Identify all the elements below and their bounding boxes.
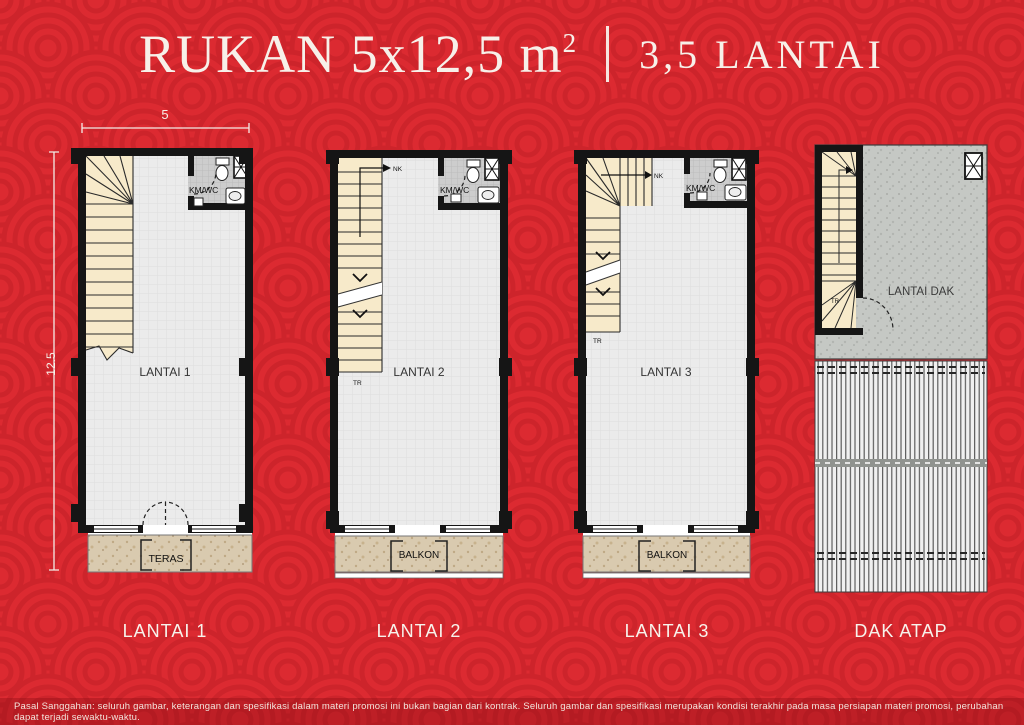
dimension-width-value: 5: [161, 107, 168, 122]
bathroom-label: KM/WC: [686, 183, 715, 193]
toilet-icon: [714, 160, 727, 183]
caption-lantai3: LANTAI 3: [625, 621, 710, 642]
drain-icon: [697, 192, 707, 200]
stair-down-label: TR: [593, 338, 602, 345]
stair-down-label: TR: [353, 380, 362, 387]
room-label-dak: LANTAI DAK: [888, 286, 955, 298]
balcony-label: BALKON: [647, 550, 688, 561]
bathroom: KM/WC: [438, 158, 500, 210]
floorplan-lantai2: NK TR KM/WC: [325, 142, 515, 584]
bathroom-label: KM/WC: [440, 185, 469, 195]
dimension-depth-value: 12.5: [44, 352, 58, 376]
staircase: [86, 156, 133, 360]
caption-lantai2: LANTAI 2: [377, 621, 462, 642]
sink-icon: [725, 185, 746, 200]
floorplan-lantai3: NK TR KM/WC: [573, 142, 763, 584]
flyer-page: RUKAN 5x12,5 m2 3,5 LANTAI 5 12.5: [0, 0, 1024, 725]
sink-icon: [226, 188, 245, 204]
roof-ridge: [815, 459, 987, 467]
footer-bar: Pasal Sanggahan: seluruh gambar, keteran…: [0, 698, 1024, 725]
caption-lantai1: LANTAI 1: [123, 621, 208, 642]
terrace: TERAS: [88, 533, 252, 572]
bathroom: KM/WC: [188, 156, 248, 210]
balcony-label: BALKON: [399, 550, 440, 561]
title-floors-label: 3,5 LANTAI: [639, 31, 885, 78]
toilet-icon: [467, 160, 480, 183]
bathroom: KM/WC: [684, 158, 747, 208]
bathroom-label: KM/WC: [189, 185, 218, 195]
dimension-depth: 12.5: [44, 152, 59, 570]
title-divider: [606, 26, 609, 82]
balcony: BALKON: [335, 533, 503, 578]
title-size: RUKAN 5x12,5 m2: [139, 23, 576, 85]
roof-hatch: [815, 361, 987, 592]
room-label-lantai2: LANTAI 2: [393, 365, 444, 379]
room-label-lantai3: LANTAI 3: [640, 365, 691, 379]
header: RUKAN 5x12,5 m2 3,5 LANTAI: [0, 10, 1024, 98]
balcony: BALKON: [583, 533, 750, 578]
title-superscript: 2: [563, 28, 577, 58]
drain-icon: [451, 194, 461, 202]
toilet-icon: [216, 158, 229, 181]
floorplan-lantai1: 5 12.5: [40, 104, 256, 578]
room-label-lantai1: LANTAI 1: [139, 365, 190, 379]
stair-up-label: NK: [654, 173, 664, 180]
vent-icon: [732, 158, 746, 180]
disclaimer-text: Pasal Sanggahan: seluruh gambar, keteran…: [0, 701, 1024, 723]
stair-down-label: TR: [831, 299, 840, 305]
dimension-width: 5: [82, 107, 249, 133]
captions-row: LANTAI 1 LANTAI 2 LANTAI 3 DAK ATAP: [0, 621, 1024, 649]
terrace-label: TERAS: [148, 553, 183, 565]
drain-icon: [194, 198, 203, 206]
title-size-label: RUKAN 5x12,5 m: [139, 24, 563, 84]
caption-dak-atap: DAK ATAP: [854, 621, 947, 642]
vent-icon: [965, 153, 982, 179]
stair-up-label: NK: [393, 166, 403, 173]
floorplan-dak-atap: TR LANTAI DAK: [813, 143, 989, 598]
vent-icon: [485, 158, 499, 180]
sink-icon: [478, 187, 499, 203]
